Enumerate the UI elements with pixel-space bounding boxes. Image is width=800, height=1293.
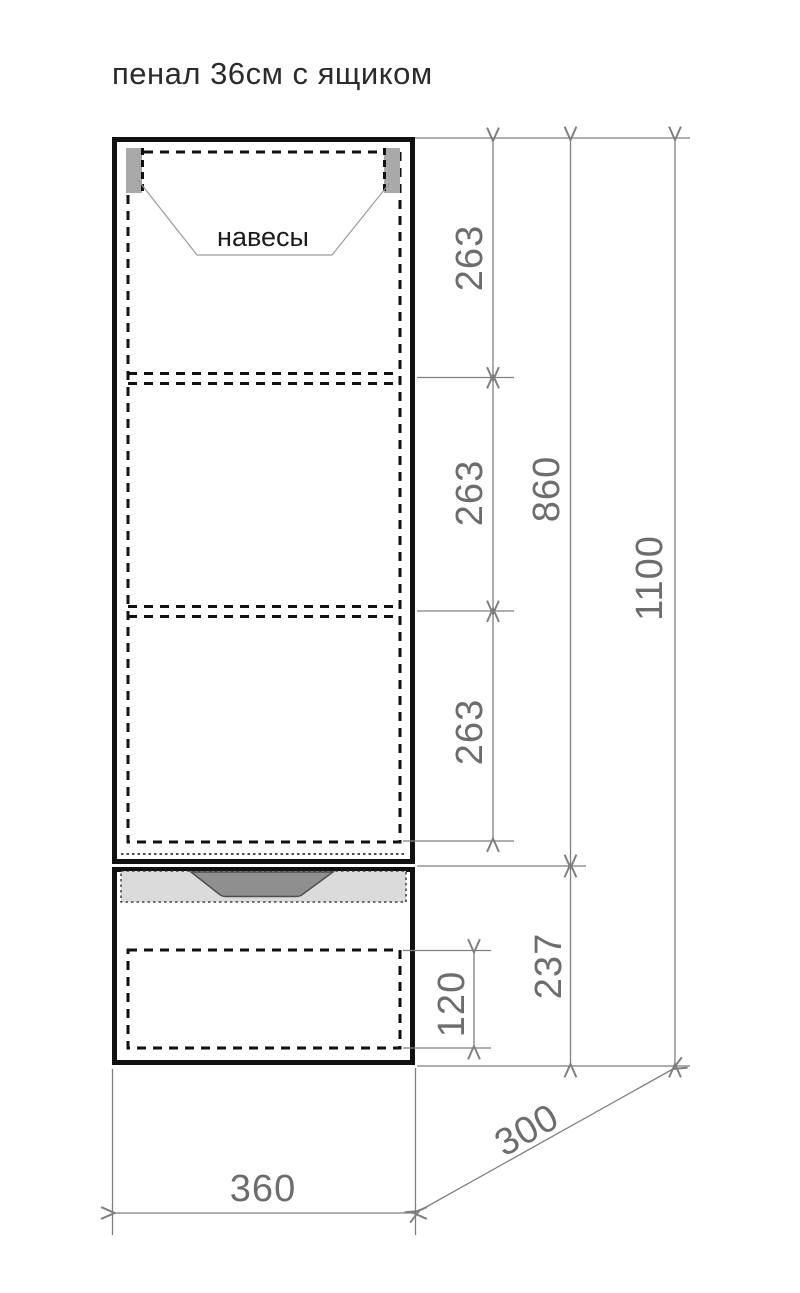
dim-label-263-bottom: 263 xyxy=(449,699,491,765)
dim-label-860: 860 xyxy=(526,456,568,522)
dim-label-237: 237 xyxy=(528,933,570,999)
hanger-right xyxy=(384,148,400,193)
dim-label-1100: 1100 xyxy=(629,535,671,621)
hanger-left xyxy=(126,148,142,193)
dim-label-360: 360 xyxy=(230,1168,296,1210)
furniture-drawing-page: пенал 36см с ящиком навес xyxy=(0,0,800,1293)
cabinet-dimension-drawing: навесы xyxy=(0,0,800,1293)
dim-label-120: 120 xyxy=(431,971,473,1037)
dim-label-263-middle: 263 xyxy=(449,460,491,526)
dim-label-263-top: 263 xyxy=(449,225,491,291)
hangers-label: навесы xyxy=(217,222,309,252)
dim-label-300: 300 xyxy=(488,1096,566,1165)
